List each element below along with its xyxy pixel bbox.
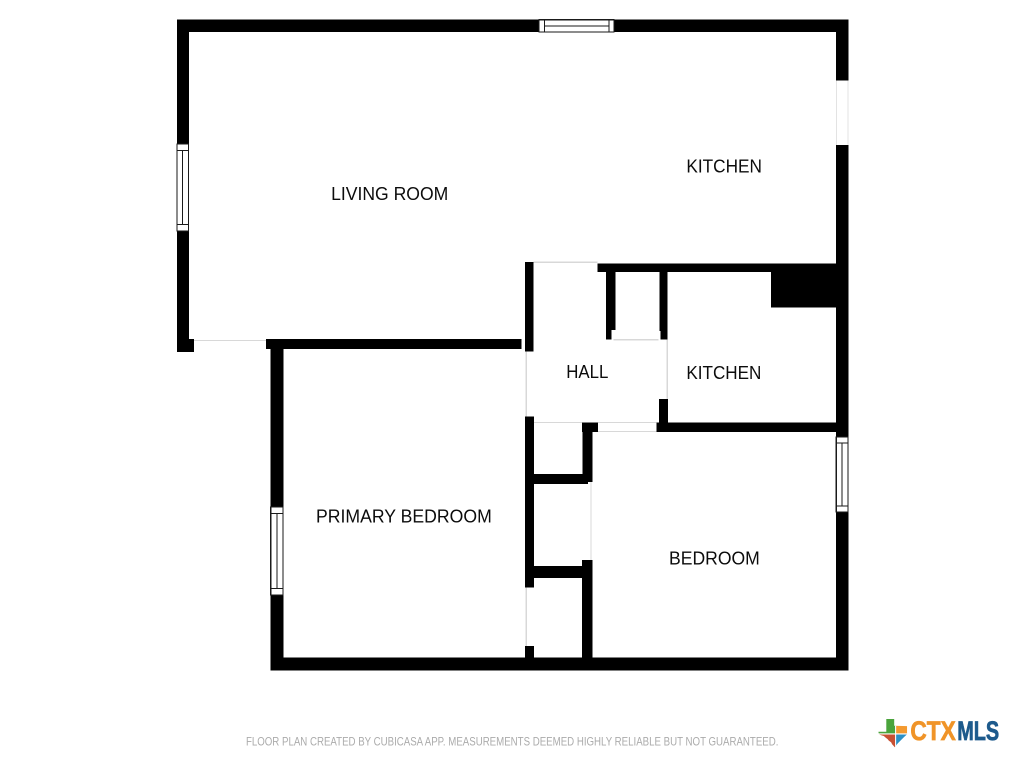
svg-text:CTX: CTX (910, 716, 956, 746)
svg-text:KITCHEN: KITCHEN (686, 156, 762, 176)
svg-text:MLS: MLS (957, 716, 999, 746)
svg-text:BEDROOM: BEDROOM (669, 549, 760, 569)
svg-text:KITCHEN: KITCHEN (686, 363, 761, 383)
svg-text:PRIMARY BEDROOM: PRIMARY BEDROOM (316, 507, 492, 527)
svg-text:HALL: HALL (566, 362, 608, 382)
svg-text:LIVING ROOM: LIVING ROOM (331, 184, 448, 204)
svg-text:FLOOR PLAN CREATED BY CUBICASA: FLOOR PLAN CREATED BY CUBICASA APP. MEAS… (246, 734, 779, 748)
